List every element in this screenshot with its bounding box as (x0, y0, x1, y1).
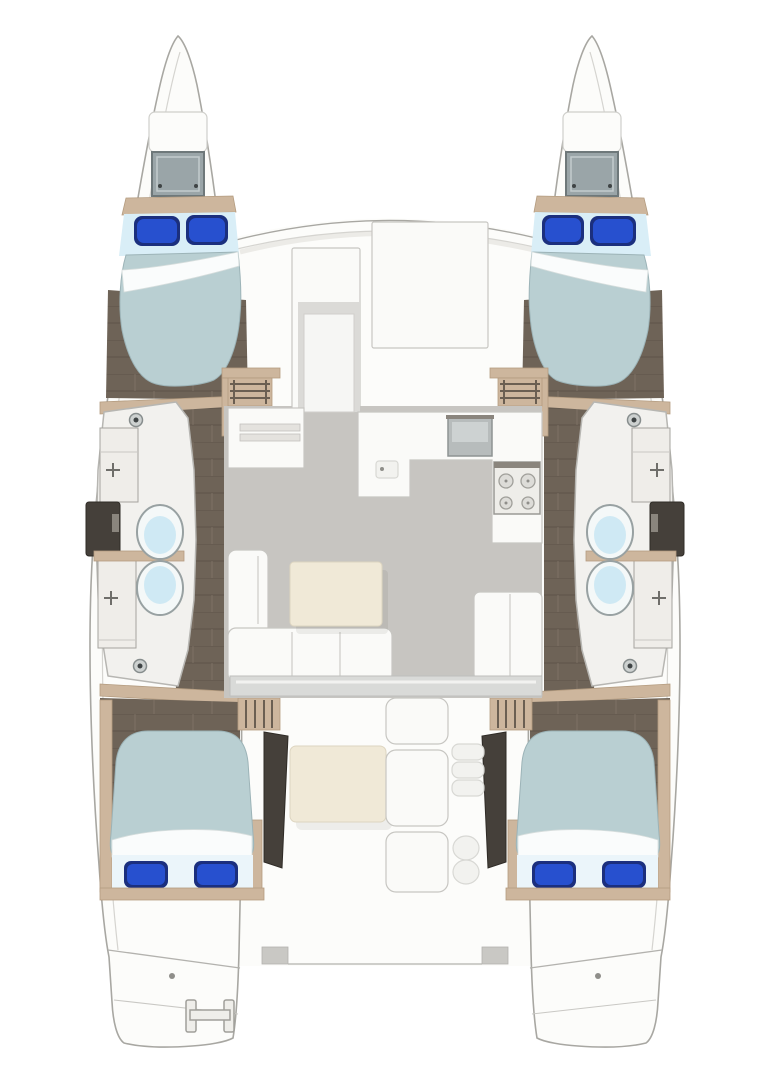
toilet-forward (137, 505, 183, 559)
shower-handle (112, 514, 119, 532)
galley-small-sink (376, 461, 398, 478)
cockpit-door-sill (230, 676, 542, 696)
forward-berth-pillow-left (134, 216, 180, 246)
anchor-locker (149, 112, 207, 152)
cockpit-table (290, 746, 386, 822)
toilet-aft (137, 561, 183, 615)
head-hatch-forward (130, 414, 143, 427)
nav-station (292, 248, 360, 412)
aft-berth-pillow-left (124, 861, 168, 888)
vanity-sink-forward (100, 428, 138, 502)
cockpit-bench (386, 698, 448, 892)
aft-berth-pillow-right (194, 861, 238, 888)
aft-cabin-side-trim-outboard (100, 700, 112, 892)
galley-sideboard (228, 408, 304, 468)
head-hatch-aft (134, 660, 147, 673)
galley-stove (494, 462, 540, 514)
vanity-sink-aft (98, 556, 136, 648)
cockpit-side-steps (452, 744, 484, 796)
floor-plan-canvas: catamaran-floor-plan (0, 0, 776, 1080)
galley-sink (446, 415, 494, 456)
galley-faucet (446, 415, 494, 419)
aft-cabin-companionway (238, 698, 280, 730)
floor-plan-page: catamaran-floor-plan (0, 0, 776, 1080)
transom-cleat-starboard (482, 947, 508, 964)
hatch-hinge-left (158, 184, 162, 188)
forward-roof-panel (372, 222, 488, 348)
aft-cabin-transom-trim (100, 888, 264, 900)
forward-cabin-hatch (152, 152, 204, 196)
aft-galley-cabinet (474, 592, 542, 680)
forward-berth-shelf (122, 196, 236, 215)
hatch-hinge-right (194, 184, 198, 188)
deck-fitting-dot (169, 973, 175, 979)
salon-table (290, 562, 382, 626)
forward-berth-pillow-right (186, 215, 228, 245)
transom-cleat-port (262, 947, 288, 964)
